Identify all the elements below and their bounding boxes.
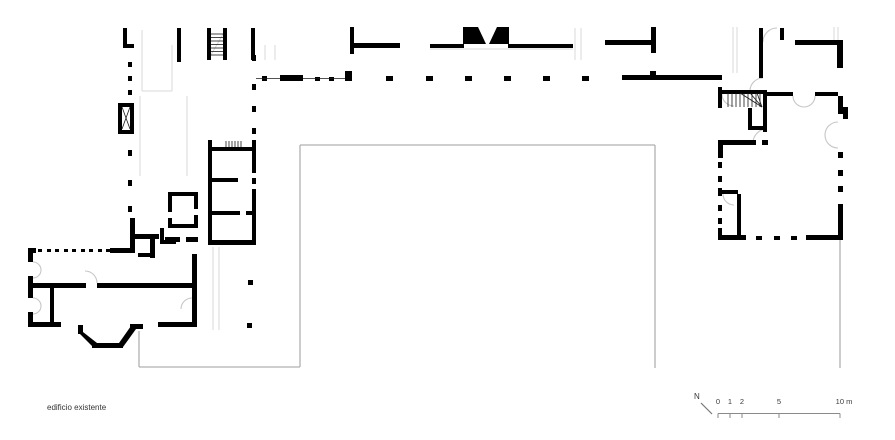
svg-text:1: 1 — [728, 397, 732, 406]
door-arcs-layer — [33, 28, 838, 314]
floor-plan: 012510 m — [0, 0, 895, 440]
svg-text:5: 5 — [777, 397, 781, 406]
svg-text:2: 2 — [740, 397, 744, 406]
existing-building-label: edificio existente — [47, 403, 106, 412]
north-indicator-label: N — [694, 392, 700, 401]
hatch-layer — [122, 34, 762, 147]
north-arrow-line — [701, 403, 712, 414]
walls-layer — [28, 27, 848, 348]
scale-bar: 012510 m — [716, 397, 852, 418]
svg-text:0: 0 — [716, 397, 720, 406]
courtyard-outline-layer — [139, 145, 840, 368]
plan-canvas: 012510 m edificio existente N — [0, 0, 895, 440]
svg-text:10 m: 10 m — [836, 397, 853, 406]
light-detail-layer — [140, 27, 838, 330]
